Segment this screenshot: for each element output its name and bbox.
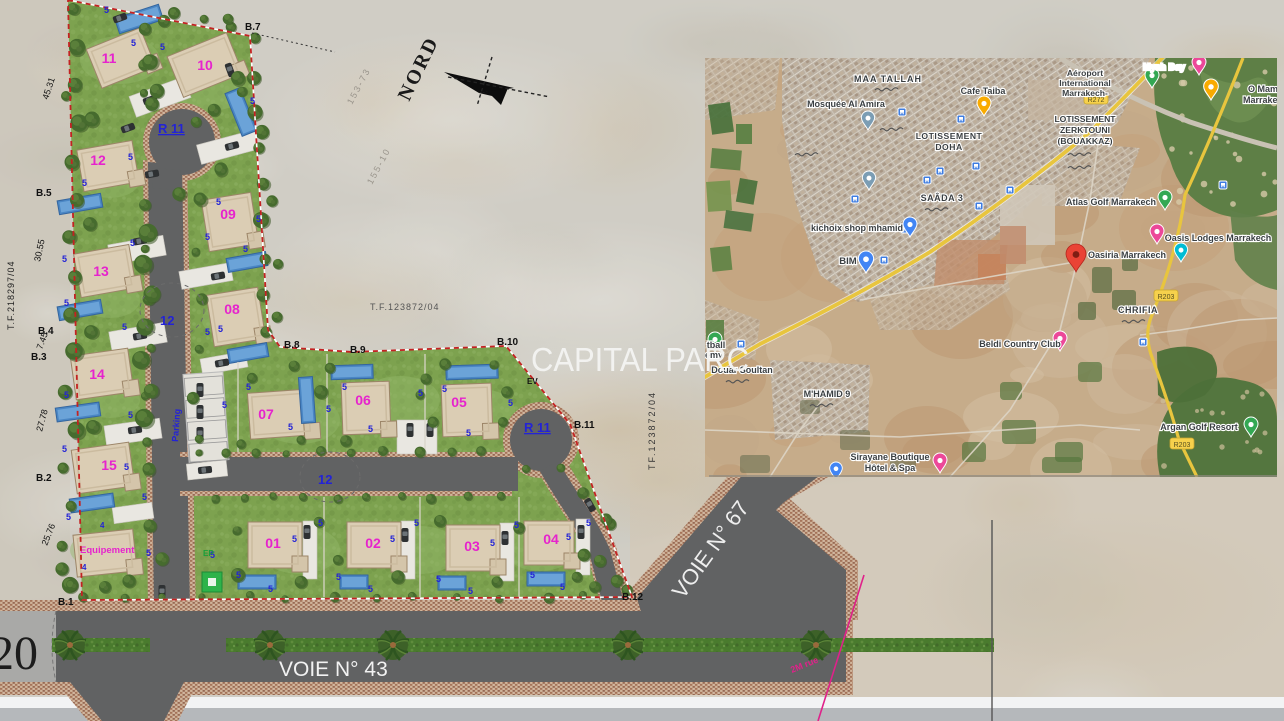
svg-text:Equipement: Equipement [80,545,135,556]
svg-text:TF.123872/04: TF.123872/04 [647,391,657,470]
svg-text:R203: R203 [1174,442,1191,449]
svg-text:R 11: R 11 [158,121,185,136]
svg-text:14: 14 [89,366,105,382]
svg-text:T.F.123872/04: T.F.123872/04 [370,302,440,312]
svg-text:Marrakech-: Marrakech- [1062,88,1108,98]
svg-text:13: 13 [93,263,109,279]
svg-text:5: 5 [436,574,441,584]
svg-text:11: 11 [102,50,117,66]
svg-text:EV: EV [527,377,538,386]
svg-text:20: 20 [0,627,38,680]
svg-text:4: 4 [82,563,87,572]
svg-text:5: 5 [414,518,419,528]
svg-text:VOIE N° 43: VOIE N° 43 [279,658,388,681]
svg-text:ZERKTOUNI: ZERKTOUNI [1060,125,1110,135]
svg-text:5: 5 [124,462,129,472]
svg-text:5: 5 [62,444,67,454]
svg-text:5: 5 [128,410,133,420]
svg-text:5: 5 [104,5,109,15]
svg-text:B.1: B.1 [58,597,74,608]
svg-text:12: 12 [90,152,106,168]
svg-text:5: 5 [218,324,223,334]
svg-text:5: 5 [64,298,69,308]
svg-text:5: 5 [64,390,69,400]
svg-text:5: 5 [490,538,495,548]
svg-text:02: 02 [365,535,381,551]
svg-text:Argan Golf Resort: Argan Golf Resort [1160,422,1238,432]
svg-text:08: 08 [224,301,240,317]
svg-text:B.9: B.9 [350,345,366,356]
svg-text:Aéroport: Aéroport [1067,68,1103,78]
svg-text:Cafe Taiba: Cafe Taiba [961,86,1007,96]
svg-text:MAA TALLAH: MAA TALLAH [854,74,922,84]
svg-text:05: 05 [451,394,467,410]
svg-text:5: 5 [466,428,471,438]
svg-text:EP: EP [203,549,214,558]
svg-text:4: 4 [100,521,105,530]
svg-text:Oasiria Marrakech: Oasiria Marrakech [1088,250,1166,260]
svg-text:B.11: B.11 [574,420,595,431]
svg-text:5: 5 [292,534,297,544]
svg-text:CHRIFIA: CHRIFIA [1118,305,1158,315]
svg-text:5: 5 [236,570,241,580]
svg-text:SAÂDA 3: SAÂDA 3 [921,192,964,203]
svg-text:Oasis Lodges Marrakech: Oasis Lodges Marrakech [1165,233,1272,243]
svg-text:5: 5 [368,424,373,434]
svg-text:5: 5 [246,382,251,392]
svg-text:5: 5 [560,582,565,592]
svg-text:B.5: B.5 [36,188,52,199]
svg-text:01: 01 [265,535,281,551]
svg-text:5: 5 [508,398,513,408]
svg-text:03: 03 [464,538,480,554]
svg-text:5: 5 [468,586,473,596]
svg-text:B.2: B.2 [36,473,52,484]
svg-text:5: 5 [128,152,133,162]
svg-text:M'HAMID 9: M'HAMID 9 [804,389,851,399]
svg-text:5: 5 [205,327,210,337]
svg-text:5: 5 [243,244,248,254]
svg-text:B.10: B.10 [497,337,519,348]
svg-text:Myah Bay: Myah Bay [1143,62,1185,72]
svg-text:5: 5 [586,518,591,528]
svg-text:09: 09 [220,206,236,222]
svg-text:5: 5 [530,570,535,580]
svg-text:5: 5 [222,400,227,410]
svg-text:Hôtel & Spa: Hôtel & Spa [865,463,917,473]
svg-text:04: 04 [543,531,559,547]
svg-text:LOTISSEMENT: LOTISSEMENT [916,131,983,141]
svg-text:5: 5 [216,197,221,207]
svg-text:07: 07 [258,406,274,422]
svg-text:5: 5 [205,232,210,242]
svg-text:International: International [1059,78,1111,88]
svg-text:LOTISSEMENT: LOTISSEMENT [1054,114,1116,124]
svg-text:15: 15 [101,457,117,473]
svg-text:CAPITAL PARC: CAPITAL PARC [531,341,749,378]
svg-text:5: 5 [368,584,373,594]
svg-text:5: 5 [326,404,331,414]
svg-text:B.8: B.8 [284,340,300,351]
svg-text:5: 5 [442,384,447,394]
svg-text:Beldi Country Club: Beldi Country Club [979,339,1061,349]
svg-text:5: 5 [82,178,87,188]
svg-text:10: 10 [197,57,213,73]
svg-text:5: 5 [160,42,165,52]
svg-text:5: 5 [318,518,323,528]
svg-text:5: 5 [514,520,519,530]
svg-text:(BOUAKKAZ): (BOUAKKAZ) [1058,136,1113,146]
svg-text:12: 12 [318,472,332,487]
svg-text:5: 5 [268,584,273,594]
svg-text:5: 5 [288,422,293,432]
svg-text:12: 12 [160,313,174,328]
svg-text:5: 5 [131,38,136,48]
svg-text:5: 5 [62,254,67,264]
svg-text:5: 5 [336,572,341,582]
svg-text:DOHA: DOHA [935,142,962,152]
svg-text:Mosquée Al Amira: Mosquée Al Amira [807,99,886,109]
svg-text:R272: R272 [1088,97,1105,104]
svg-text:5: 5 [250,96,255,106]
svg-text:5: 5 [566,532,571,542]
svg-text:5: 5 [256,214,261,224]
svg-text:kichoix shop mhamid: kichoix shop mhamid [811,223,903,233]
svg-text:T.F.218297/04: T.F.218297/04 [6,260,16,330]
svg-text:5: 5 [390,534,395,544]
svg-text:5: 5 [130,238,135,248]
svg-text:5: 5 [342,382,347,392]
svg-text:5: 5 [66,512,71,522]
svg-text:B.7: B.7 [245,22,261,33]
svg-text:06: 06 [355,392,371,408]
svg-text:5: 5 [122,322,127,332]
svg-text:5: 5 [146,548,151,558]
svg-text:5: 5 [418,388,423,398]
svg-text:B.12: B.12 [622,592,644,603]
svg-text:R203: R203 [1158,294,1175,301]
svg-text:B.3: B.3 [31,352,47,363]
svg-text:Sirayane Boutique: Sirayane Boutique [850,452,929,462]
svg-text:BIM: BIM [839,256,857,267]
svg-text:R 11: R 11 [524,420,551,435]
svg-text:5: 5 [142,492,147,502]
svg-text:Atlas Golf Marrakech: Atlas Golf Marrakech [1066,197,1156,207]
